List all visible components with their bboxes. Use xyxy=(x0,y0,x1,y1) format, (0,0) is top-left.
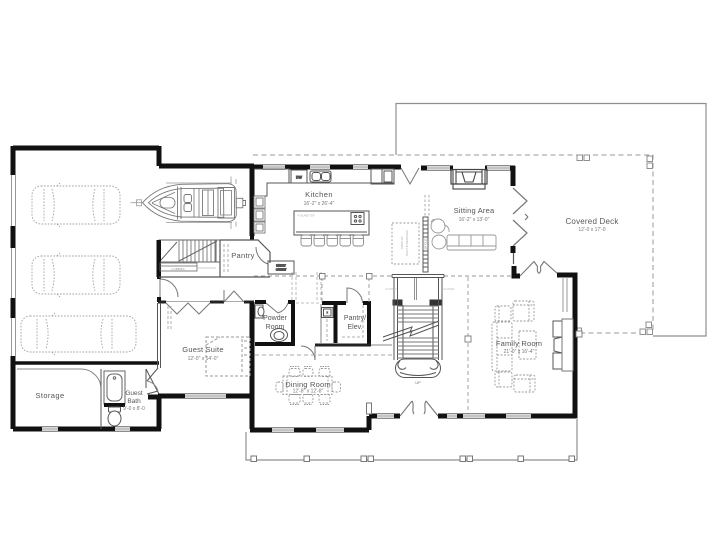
svg-text:4' ISLAND TOP: 4' ISLAND TOP xyxy=(297,215,315,218)
svg-text:Room: Room xyxy=(266,324,285,331)
svg-text:UP: UP xyxy=(415,380,421,385)
svg-text:CABINET: CABINET xyxy=(276,269,287,272)
svg-text:Kitchen: Kitchen xyxy=(305,190,333,199)
svg-text:Guest Suite: Guest Suite xyxy=(182,345,223,354)
svg-text:12'-0" x 14'-0": 12'-0" x 14'-0" xyxy=(188,356,219,362)
svg-text:Storage: Storage xyxy=(35,391,64,400)
svg-text:Covered Deck: Covered Deck xyxy=(565,217,619,226)
svg-text:Guest: Guest xyxy=(125,390,143,397)
svg-text:Elev.: Elev. xyxy=(347,324,362,331)
svg-text:12'-8" x 12'-8": 12'-8" x 12'-8" xyxy=(293,389,324,395)
svg-text:Pantry: Pantry xyxy=(231,251,254,260)
svg-text:Family Room: Family Room xyxy=(496,339,542,348)
svg-text:BUILT-IN BENCHES: BUILT-IN BENCHES xyxy=(405,230,409,256)
svg-text:CUBBIES: CUBBIES xyxy=(171,267,184,271)
svg-text:TABLE W/: TABLE W/ xyxy=(400,236,404,249)
svg-text:Sitting Area: Sitting Area xyxy=(454,206,495,215)
svg-text:16'-2" x 26'-4": 16'-2" x 26'-4" xyxy=(304,201,335,207)
svg-text:DW: DW xyxy=(296,176,302,180)
svg-text:Bath: Bath xyxy=(127,398,141,405)
svg-text:PANTRY: PANTRY xyxy=(276,265,286,268)
svg-text:18' CLG: 18' CLG xyxy=(424,238,428,250)
svg-text:Pantry/: Pantry/ xyxy=(344,315,366,322)
svg-text:CLOSET: CLOSET xyxy=(385,287,396,291)
svg-text:CLOSET: CLOSET xyxy=(443,287,454,291)
svg-text:12'-0 x 17'-0: 12'-0 x 17'-0 xyxy=(578,227,605,233)
svg-text:9'-0 x 8'-0: 9'-0 x 8'-0 xyxy=(123,406,145,412)
svg-text:16'-2" x 13'-0": 16'-2" x 13'-0" xyxy=(459,217,490,223)
svg-text:Powder: Powder xyxy=(263,315,287,322)
svg-text:21'-0" x 16'-4": 21'-0" x 16'-4" xyxy=(504,349,535,355)
